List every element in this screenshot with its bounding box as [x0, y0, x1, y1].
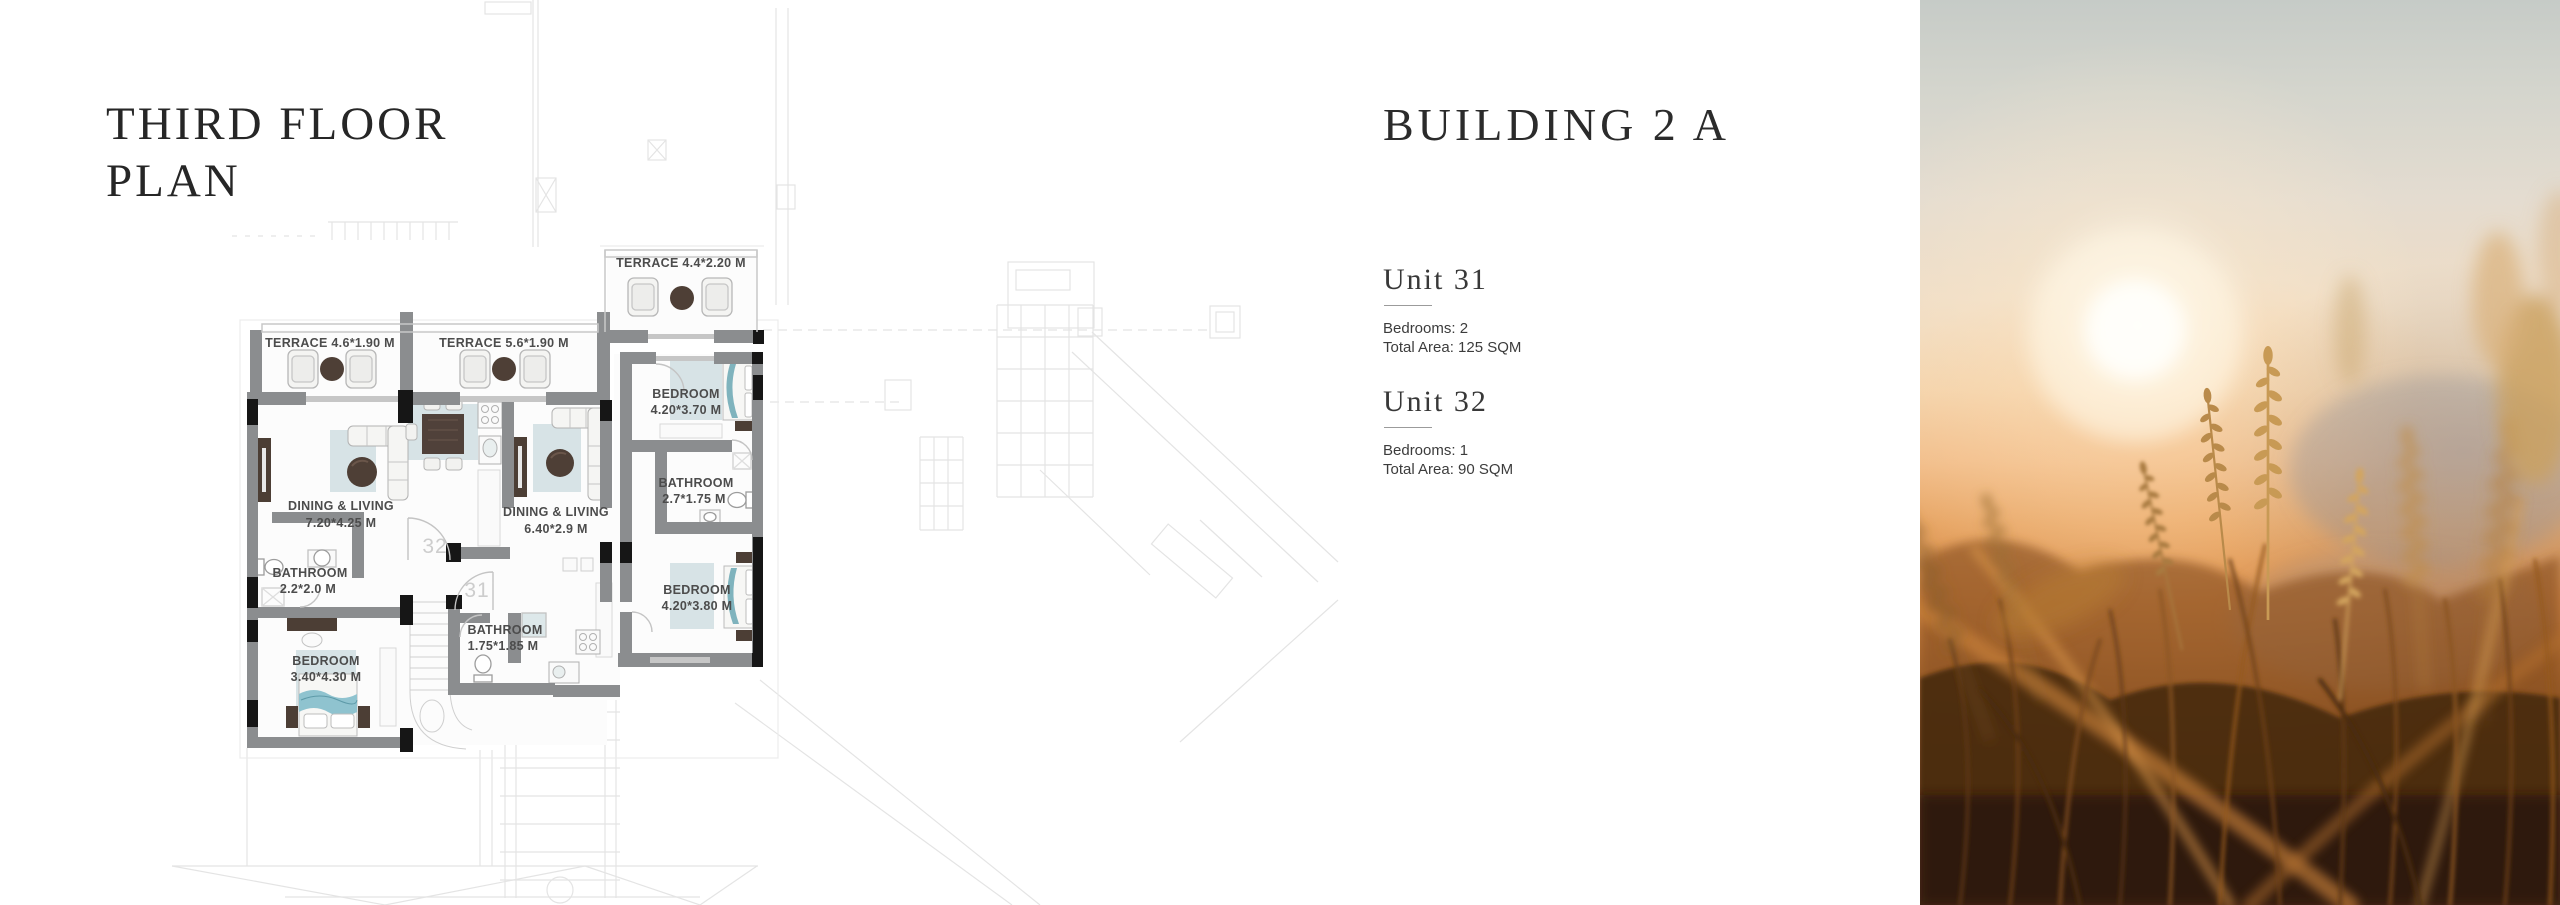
- unit-card-32: Unit 32 Bedrooms: 1 Total Area: 90 SQM: [1383, 385, 1853, 479]
- bathroom-mid-name: BATHROOM: [467, 623, 542, 637]
- bathroom-right-name: BATHROOM: [658, 476, 733, 490]
- bathroom-left-dims: 2.2*2.0 M: [280, 582, 336, 596]
- unit-underline: [1384, 305, 1432, 306]
- bedroom-left-name: BEDROOM: [292, 654, 359, 668]
- building-heading: BUILDING 2 A: [1383, 98, 1853, 151]
- bedroom-bottom-right-dims: 4.20*3.80 M: [662, 599, 733, 613]
- living-mid-dims: 6.40*2.9 M: [524, 522, 587, 536]
- bedroom-top-right-dims: 4.20*3.70 M: [651, 403, 722, 417]
- unit-card-31: Unit 31 Bedrooms: 2 Total Area: 125 SQM: [1383, 263, 1853, 357]
- living-left-dims: 7.20*4.25 M: [306, 516, 377, 530]
- unit-name: Unit 31: [1383, 263, 1853, 297]
- bedroom-bottom-right-name: BEDROOM: [663, 583, 730, 597]
- unit-total-area: Total Area: 90 SQM: [1383, 460, 1853, 479]
- kitchen-left: [478, 402, 502, 546]
- unit-number-32: 32: [422, 535, 447, 558]
- living-mid-name: DINING & LIVING: [503, 505, 609, 519]
- unit-bedrooms: Bedrooms: 1: [1383, 441, 1853, 460]
- building-info-panel: BUILDING 2 A Unit 31 Bedrooms: 2 Total A…: [1383, 98, 1853, 507]
- living-left-name: DINING & LIVING: [288, 499, 394, 513]
- unit-name: Unit 32: [1383, 385, 1853, 419]
- unit-underline: [1384, 427, 1432, 428]
- floor-plan: TERRACE 4.6*1.90 M TERRACE 5.6*1.90 M TE…: [0, 0, 1340, 905]
- unit-list: Unit 31 Bedrooms: 2 Total Area: 125 SQM …: [1383, 263, 1853, 479]
- unit-total-area: Total Area: 125 SQM: [1383, 338, 1853, 357]
- photo-overlay: [1920, 0, 2560, 905]
- bathroom-right-dims: 2.7*1.75 M: [662, 492, 725, 506]
- bathroom-left-name: BATHROOM: [272, 566, 347, 580]
- bedroom-left-dims: 3.40*4.30 M: [291, 670, 362, 684]
- sunset-grass-photo: [1920, 0, 2560, 905]
- brochure-page: THIRD FLOOR PLAN: [0, 0, 2560, 905]
- unit-bedrooms: Bedrooms: 2: [1383, 319, 1853, 338]
- terrace-middle-label: TERRACE 5.6*1.90 M: [439, 336, 569, 350]
- bedroom-top-right-name: BEDROOM: [652, 387, 719, 401]
- bathroom-mid-dims: 1.75*1.85 M: [468, 639, 539, 653]
- terrace-left-label: TERRACE 4.6*1.90 M: [265, 336, 395, 350]
- terrace-top-label: TERRACE 4.4*2.20 M: [616, 256, 746, 270]
- unit-number-31: 31: [464, 579, 489, 602]
